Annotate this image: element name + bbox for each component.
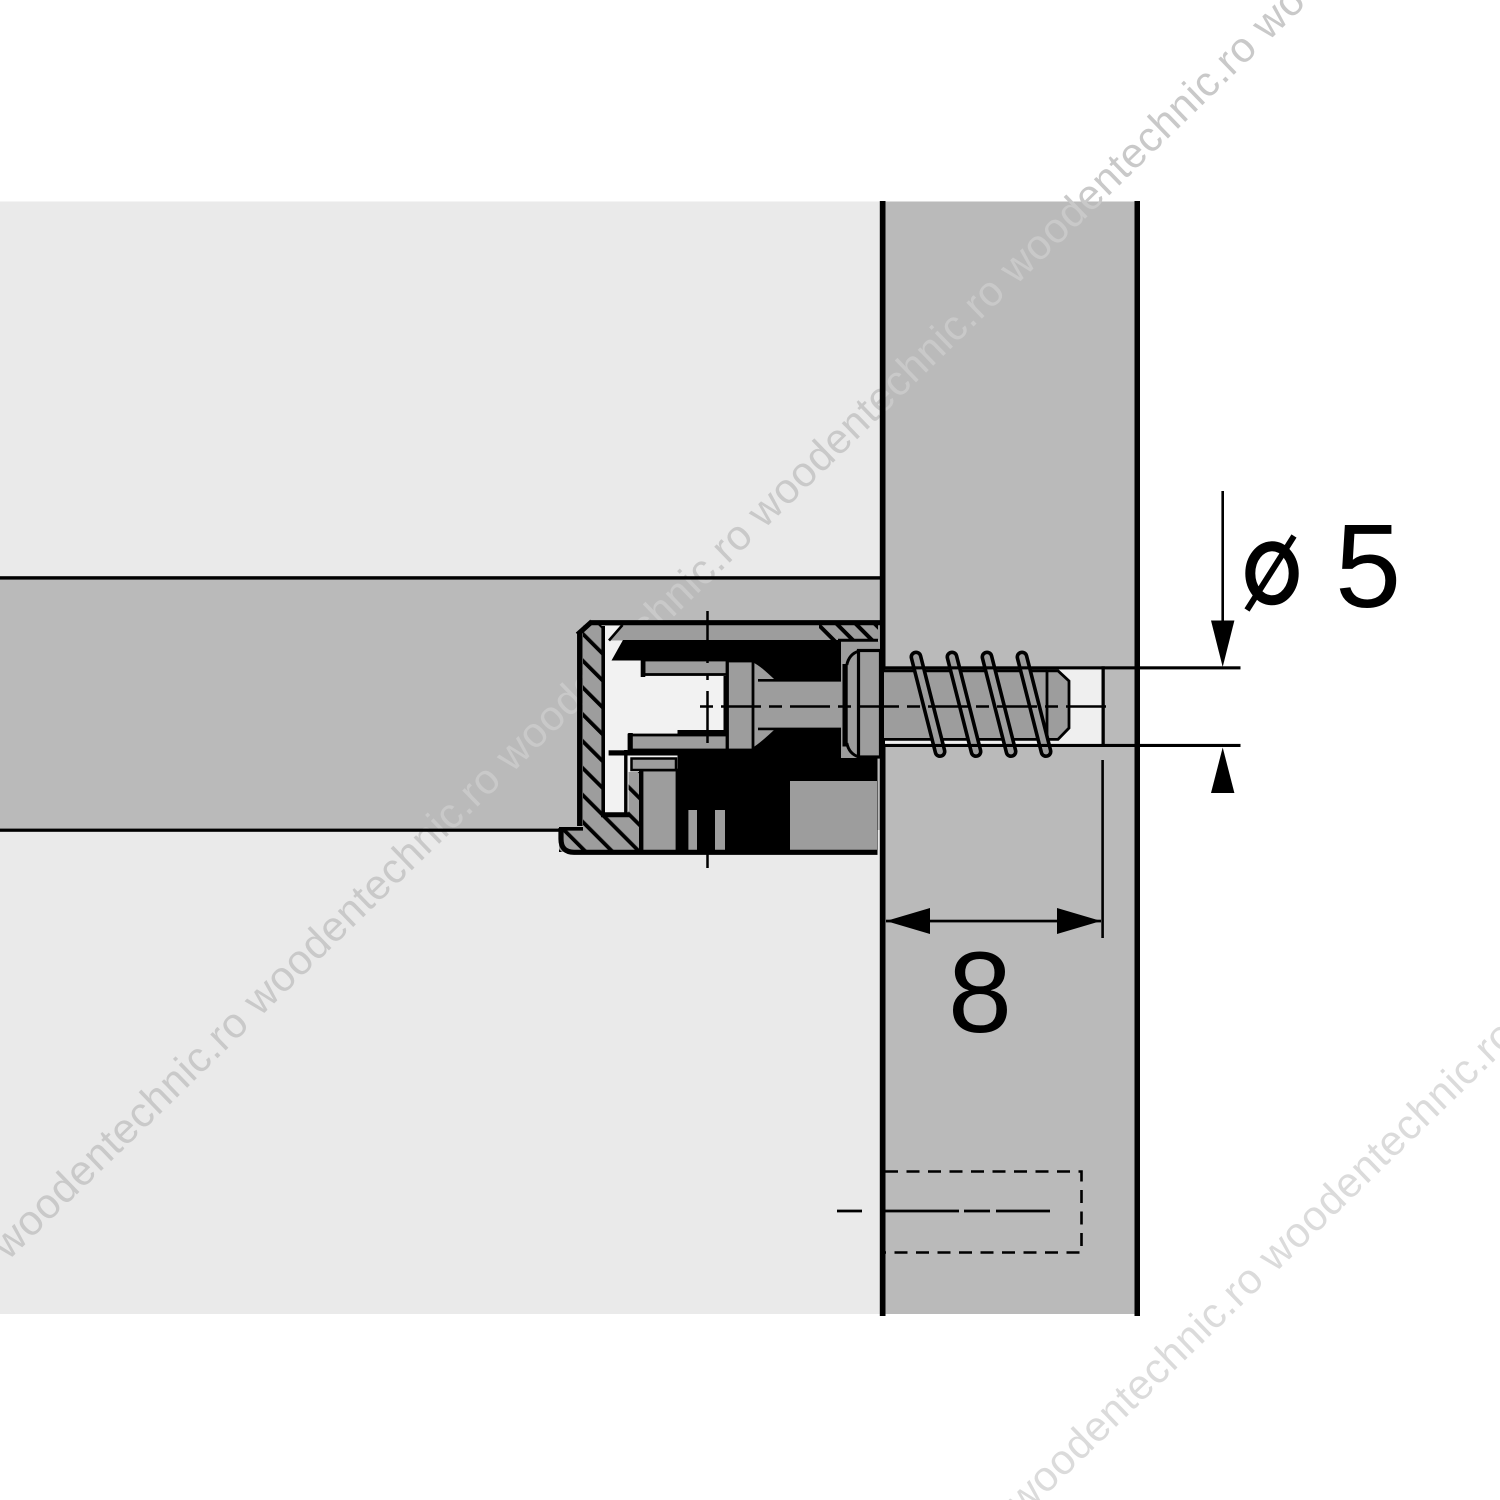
svg-text:5: 5 (1335, 500, 1401, 633)
svg-text:8: 8 (948, 929, 1012, 1057)
